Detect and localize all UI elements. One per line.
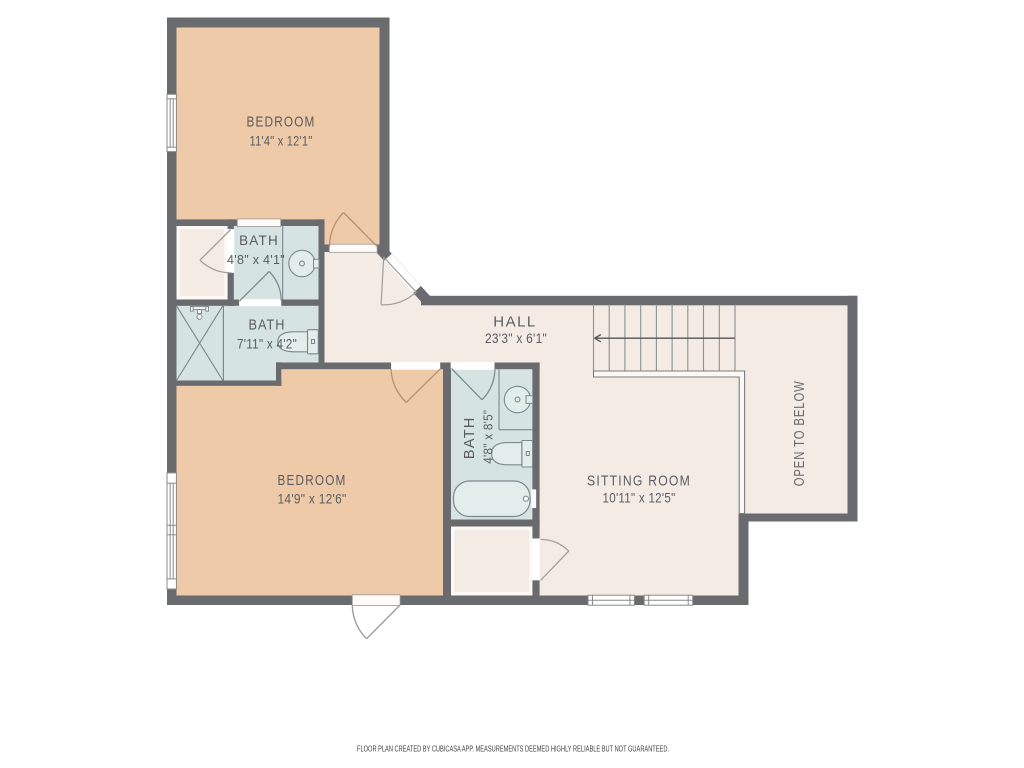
svg-text:7'11" x 4'2": 7'11" x 4'2" <box>237 337 297 352</box>
svg-text:BATH: BATH <box>249 317 286 334</box>
svg-text:BEDROOM: BEDROOM <box>247 114 316 131</box>
svg-text:10'11" x 12'5": 10'11" x 12'5" <box>603 491 676 506</box>
svg-text:4'8" x 8'5": 4'8" x 8'5" <box>481 410 496 464</box>
svg-text:BATH: BATH <box>462 416 478 459</box>
svg-text:OPEN TO BELOW: OPEN TO BELOW <box>791 380 808 486</box>
svg-text:11'4" x 12'1": 11'4" x 12'1" <box>250 134 313 149</box>
svg-text:4'8" x 4'1": 4'8" x 4'1" <box>227 253 285 267</box>
svg-text:HALL: HALL <box>493 314 537 331</box>
svg-text:14'9" x 12'6": 14'9" x 12'6" <box>278 492 347 507</box>
svg-text:SITTING ROOM: SITTING ROOM <box>587 473 691 490</box>
svg-text:23'3" x 6'1": 23'3" x 6'1" <box>485 331 547 346</box>
svg-text:BEDROOM: BEDROOM <box>278 472 347 489</box>
svg-text:FLOOR PLAN CREATED BY CUBICASA: FLOOR PLAN CREATED BY CUBICASA APP. MEAS… <box>357 745 669 754</box>
svg-text:BATH: BATH <box>239 233 279 248</box>
